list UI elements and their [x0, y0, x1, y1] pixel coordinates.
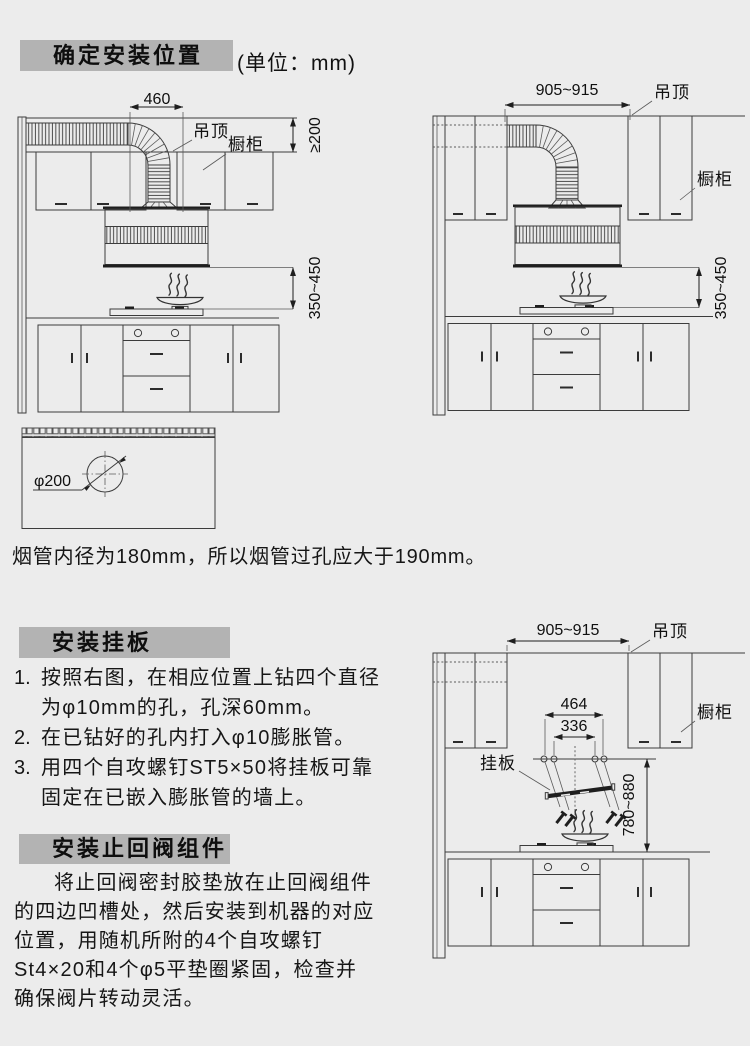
wok — [560, 296, 606, 308]
dimension-mount-height: 780~880 — [621, 759, 647, 852]
dim-height-label: 350~450 — [713, 257, 730, 320]
step-line: 为φ10mm的孔，孔深60mm。 — [14, 693, 424, 723]
mounting-plate — [545, 784, 614, 799]
base-cabinet — [445, 317, 713, 411]
range-hood — [513, 205, 622, 268]
section-title: 安装挂板 — [52, 630, 152, 655]
dim-gap-label: ≥200 — [307, 117, 324, 153]
callout-ceiling: 吊顶 — [631, 622, 688, 652]
step-number: 2. — [14, 723, 41, 753]
dimension-hood-height: 350~450 — [699, 257, 730, 320]
paragraph-line: 确保阀片转动灵活。 — [14, 985, 434, 1014]
manual-page: 确定安装位置 (单位：mm) — [0, 0, 750, 1046]
dim-460-label: 460 — [144, 92, 171, 108]
masonry-strip — [22, 428, 215, 438]
ceiling-label: 吊顶 — [652, 622, 688, 641]
duct-hole: φ200 — [33, 451, 128, 497]
callout-cabinet: 橱柜 — [680, 170, 733, 200]
ceiling-label: 吊顶 — [193, 122, 229, 141]
dim-height-label: 350~450 — [307, 257, 324, 320]
section-header-check-valve: 安装止回阀组件 — [19, 834, 230, 864]
cabinet-label: 橱柜 — [697, 170, 733, 189]
cooktop-and-pan — [110, 268, 293, 316]
range-hood — [103, 207, 210, 268]
callout-ceiling: 吊顶 — [632, 83, 690, 115]
dim-inner-label: 336 — [561, 718, 588, 735]
dimension-hood-height: 350~450 — [293, 257, 324, 320]
diagram-wall-hole: φ200 — [20, 426, 220, 534]
cooktop-and-pan — [520, 810, 613, 852]
callout-cabinet: 橱柜 — [681, 703, 733, 732]
mount-plate-steps: 1.按照右图，在相应位置上钻四个直径 为φ10mm的孔，孔深60mm。 2.在已… — [14, 663, 424, 813]
dimension-inner-holes: 336 — [554, 718, 595, 755]
section-header-mount-plate: 安装挂板 — [19, 627, 230, 658]
paragraph-line: St4×20和4个φ5平垫圈紧固，检查并 — [14, 956, 434, 985]
cabinet-label: 橱柜 — [228, 135, 264, 154]
step-line: 1.按照右图，在相应位置上钻四个直径 — [14, 663, 424, 693]
diagram-kitchen-right: 905~915 350~450 吊顶 橱柜 — [423, 78, 750, 420]
base-cabinet — [26, 318, 279, 412]
dim-outer-label: 464 — [561, 696, 588, 713]
dimension-ceiling-gap: ≥200 — [293, 117, 324, 153]
section-header-position: 确定安装位置 — [20, 40, 233, 71]
paragraph-line: 位置，用随机所附的4个自攻螺钉 — [14, 927, 434, 956]
paragraph-line: 的四边凹槽处，然后安装到机器的对应 — [14, 898, 434, 927]
hole-size-note: 烟管内径为180mm，所以烟管过孔应大于190mm。 — [12, 540, 486, 569]
diagram-kitchen-left: 460 ≥200 350~450 吊顶 橱柜 — [17, 92, 352, 422]
wall — [433, 116, 445, 415]
callout-ceiling: 吊顶 — [173, 122, 229, 151]
step-line: 3.用四个自攻螺钉ST5×50将挂板可靠 — [14, 753, 424, 783]
wall — [18, 117, 26, 413]
ceiling-label: 吊顶 — [654, 83, 690, 102]
cabinet-label: 橱柜 — [697, 703, 733, 722]
step-text: 按照右图，在相应位置上钻四个直径 — [41, 667, 380, 689]
dim-hole-label: φ200 — [34, 473, 71, 490]
wok — [562, 834, 608, 846]
unit-note: (单位：mm) — [237, 47, 356, 77]
step-line: 固定在已嵌入膨胀管的墙上。 — [14, 783, 424, 813]
plate-label: 挂板 — [480, 754, 516, 773]
dim-mount-height-label: 780~880 — [621, 774, 638, 837]
wall — [433, 653, 445, 958]
cooktop-and-pan — [520, 268, 699, 315]
step-line: 2.在已钻好的孔内打入φ10膨胀管。 — [14, 723, 424, 753]
dim-width-label: 905~915 — [536, 82, 599, 99]
diagram-mount-plate: 905~915 吊顶 橱柜 464 336 — [423, 618, 750, 963]
exhaust-duct — [507, 125, 585, 208]
step-number: 3. — [14, 753, 41, 783]
section-title: 确定安装位置 — [53, 43, 203, 68]
exhaust-duct — [26, 123, 177, 208]
base-cabinet — [445, 852, 710, 946]
paragraph-line: 将止回阀密封胶垫放在止回阀组件 — [14, 869, 434, 898]
step-text: 用四个自攻螺钉ST5×50将挂板可靠 — [41, 757, 373, 779]
steam-icon — [573, 810, 593, 834]
dim-width-label: 905~915 — [537, 622, 600, 639]
step-number: 1. — [14, 663, 41, 693]
section-title: 安装止回阀组件 — [52, 836, 227, 861]
step-text: 在已钻好的孔内打入φ10膨胀管。 — [41, 727, 355, 749]
dimension-width: 905~915 — [507, 622, 629, 651]
check-valve-paragraph: 将止回阀密封胶垫放在止回阀组件 的四边凹槽处，然后安装到机器的对应 位置，用随机… — [14, 869, 434, 1014]
steam-icon — [571, 272, 591, 296]
steam-icon — [168, 273, 188, 297]
